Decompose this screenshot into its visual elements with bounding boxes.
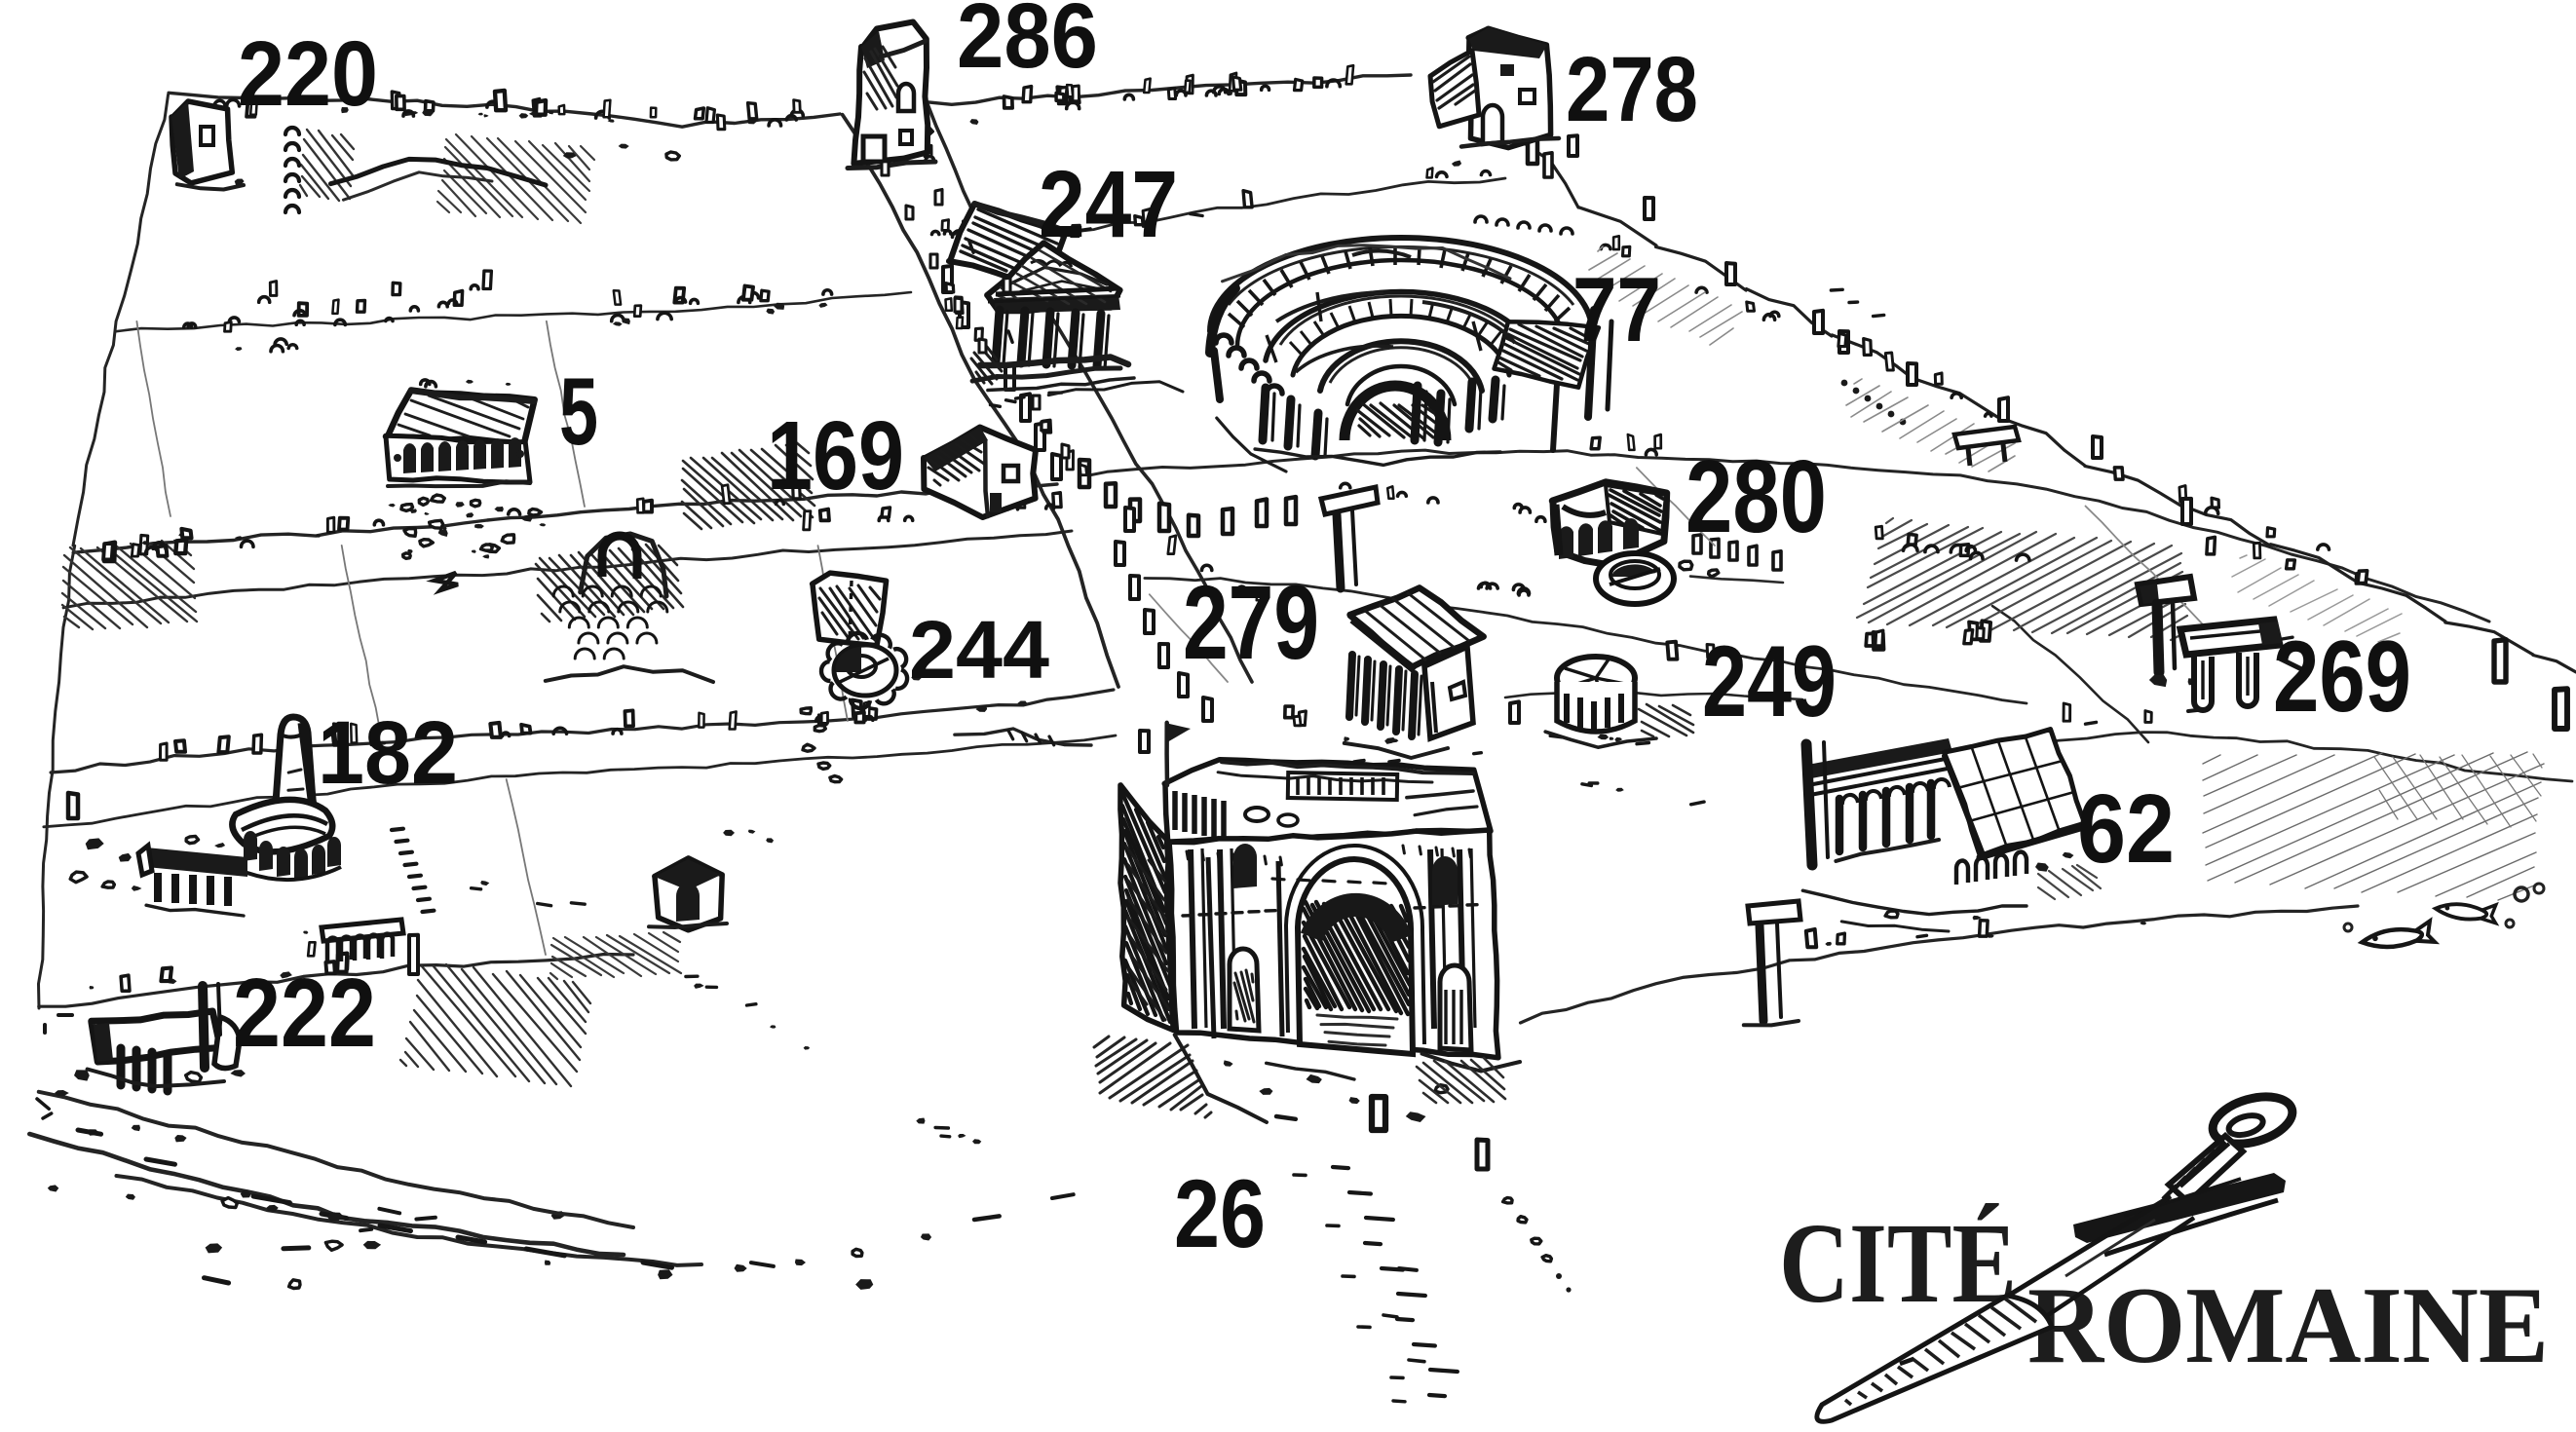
svg-text:26: 26	[1174, 1159, 1266, 1267]
svg-text:280: 280	[1686, 439, 1827, 554]
svg-text:169: 169	[767, 401, 904, 510]
svg-text:278: 278	[1566, 38, 1698, 141]
svg-text:279: 279	[1183, 563, 1319, 681]
svg-text:220: 220	[238, 22, 378, 126]
svg-text:77: 77	[1572, 258, 1661, 360]
svg-text:ROMAINE: ROMAINE	[2027, 1265, 2549, 1386]
svg-text:CITÉ: CITÉ	[1779, 1199, 2017, 1327]
svg-text:249: 249	[1702, 625, 1837, 738]
svg-text:182: 182	[318, 703, 458, 803]
svg-text:222: 222	[233, 959, 376, 1068]
svg-text:269: 269	[2273, 621, 2411, 734]
svg-text:244: 244	[909, 604, 1049, 696]
svg-text:247: 247	[1039, 151, 1178, 257]
svg-text:5: 5	[559, 358, 598, 465]
svg-text:62: 62	[2077, 774, 2175, 884]
svg-text:286: 286	[957, 0, 1098, 88]
